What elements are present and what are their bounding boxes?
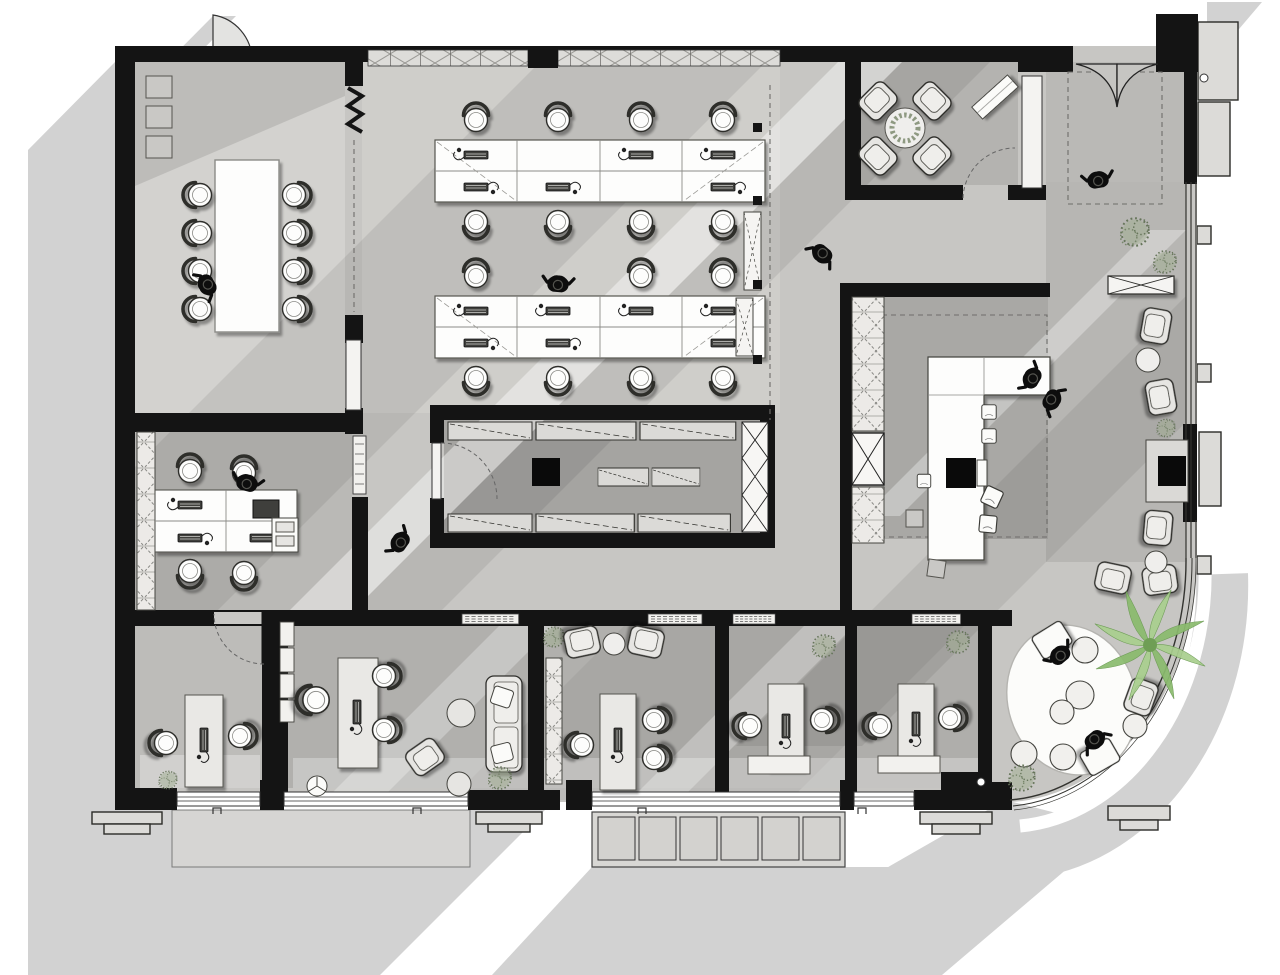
team-office-door [353,436,366,494]
office1-door-gap [214,612,262,624]
cabinet-strip [137,432,155,610]
pouf [447,699,475,727]
tall-cabinets [852,297,884,431]
sofa [486,676,522,772]
locker-column [742,422,768,532]
conference-table [215,160,279,332]
wall-shelves [280,622,294,722]
storage-door-leaf [432,443,441,499]
stool [906,510,923,527]
meeting-door-leaf [346,340,361,410]
printer-table [272,518,298,552]
equipment-block [532,458,560,486]
lounge-tall-door [1022,76,1042,188]
bench-desk-2 [435,296,765,358]
storage-cubes [146,76,172,158]
side-table [1145,551,1167,573]
stool [927,559,946,578]
framed-cabinet [852,433,884,485]
side-table [1136,348,1160,372]
x-bench [1108,276,1174,294]
fireplace [1146,440,1188,502]
laptop [253,500,279,518]
office5-door-knob [977,778,985,786]
floor-plan-canvas: Meeting Room Open Office [0,0,1280,975]
pouf [447,772,471,796]
credenza [748,756,810,774]
door-knob [1200,74,1208,82]
credenza [878,756,940,773]
wardrobe [546,658,562,784]
tall-cabinets [852,487,884,543]
tripod-stool [307,776,327,796]
cooktop [946,458,976,488]
terrace-outline [172,810,470,867]
bench-desk-1 [435,140,765,202]
planter-row [592,812,845,867]
counter-module [977,460,987,486]
coffee-table [603,633,625,655]
